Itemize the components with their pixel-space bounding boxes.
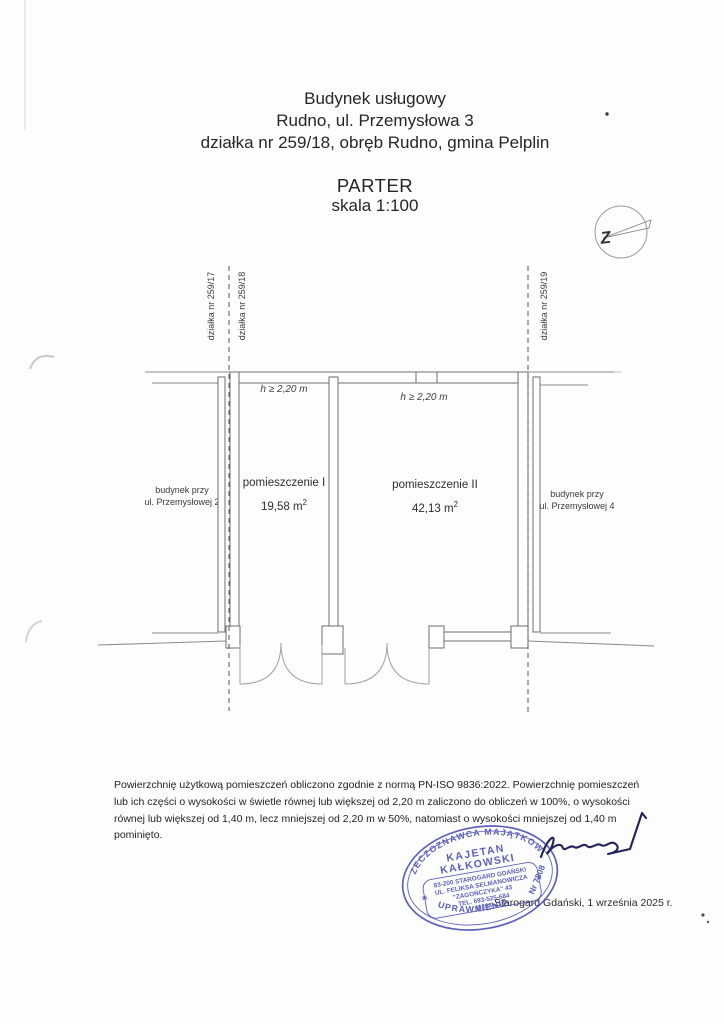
north-letter: Z [598, 228, 612, 248]
measurement-footnote: Powierzchnię użytkową pomieszczeń oblicz… [114, 777, 655, 844]
right-wall-base [511, 626, 528, 648]
parcel-label-259-19: działka nr 259/19 [539, 265, 551, 347]
door-swings [240, 643, 429, 684]
stamp-address-2: UL. FELIKSA SELMANOWICZA [434, 874, 528, 897]
title-line-2: Rudno, ul. Przemysłowa 3 [80, 110, 670, 132]
document-page: Budynek usługowy Rudno, ul. Przemysłowa … [0, 0, 724, 1024]
front-wall-segment [444, 632, 511, 641]
title-line-1: Budynek usługowy [80, 88, 670, 110]
window [416, 372, 437, 383]
neighbor-left-label: budynek przy ul. Przemysłowej 2 [132, 484, 232, 508]
stamp-reg-number: (6268) [476, 902, 495, 912]
back-wall [230, 372, 528, 383]
height-note-room2: h ≥ 2,20 m [364, 392, 484, 403]
height-note-room1: h ≥ 2,20 m [224, 384, 344, 395]
stamp-ornament-right [536, 875, 542, 881]
neighbor-right-label: budynek przy ul. Przemysłowej 4 [527, 488, 627, 512]
room2-area: 42,13 m2 [360, 495, 510, 519]
stamp-name-2: KAŁKOWSKI [439, 852, 515, 877]
plan-subtitle: PARTER skala 1:100 [80, 175, 670, 216]
stamp-ornament-left [422, 895, 428, 901]
center-pier [322, 626, 343, 654]
plan-level: PARTER [80, 175, 670, 196]
door-room1 [240, 643, 322, 684]
plan-scale: skala 1:100 [80, 196, 670, 216]
parcel-label-259-18: działka nr 259/18 [237, 265, 249, 347]
title-line-3: działka nr 259/18, obręb Rudno, gmina Pe… [80, 132, 670, 154]
stamp-address-1: 83-200 STAROGARD GDAŃSKI [433, 864, 527, 889]
stamp-license-number: Nr 7308 [526, 863, 547, 895]
door-room2 [345, 643, 429, 684]
stamp-name-1: KAJETAN [445, 842, 505, 864]
left-door-jamb [226, 626, 240, 648]
document-header: Budynek usługowy Rudno, ul. Przemysłowa … [80, 88, 670, 216]
room2-label: pomieszczenie II 42,13 m2 [360, 476, 510, 519]
date-line: Starogard Gdański, 1 września 2025 r. [494, 897, 673, 909]
right-door-jamb [429, 626, 444, 648]
parcel-label-259-17: działka nr 259/17 [206, 265, 218, 347]
room2-name: pomieszczenie II [360, 476, 510, 495]
